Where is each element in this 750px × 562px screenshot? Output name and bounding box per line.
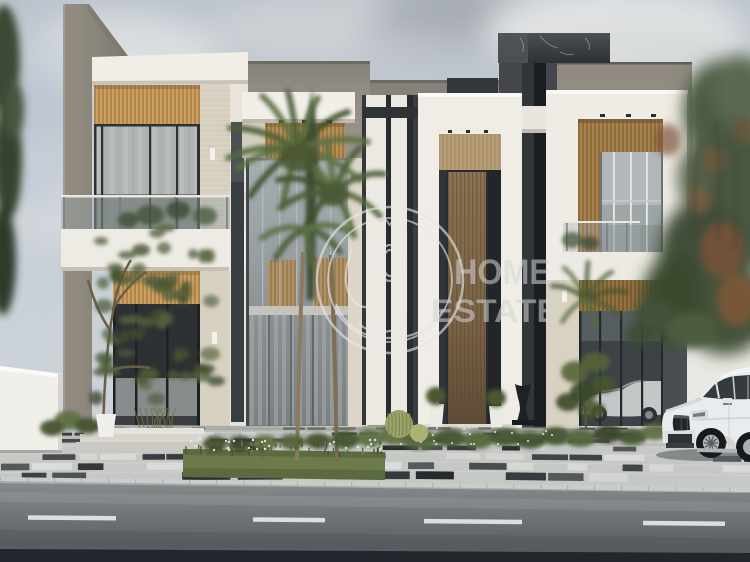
svg-text:HOME: HOME bbox=[454, 253, 551, 292]
svg-text:ESTATE: ESTATE bbox=[431, 293, 559, 329]
